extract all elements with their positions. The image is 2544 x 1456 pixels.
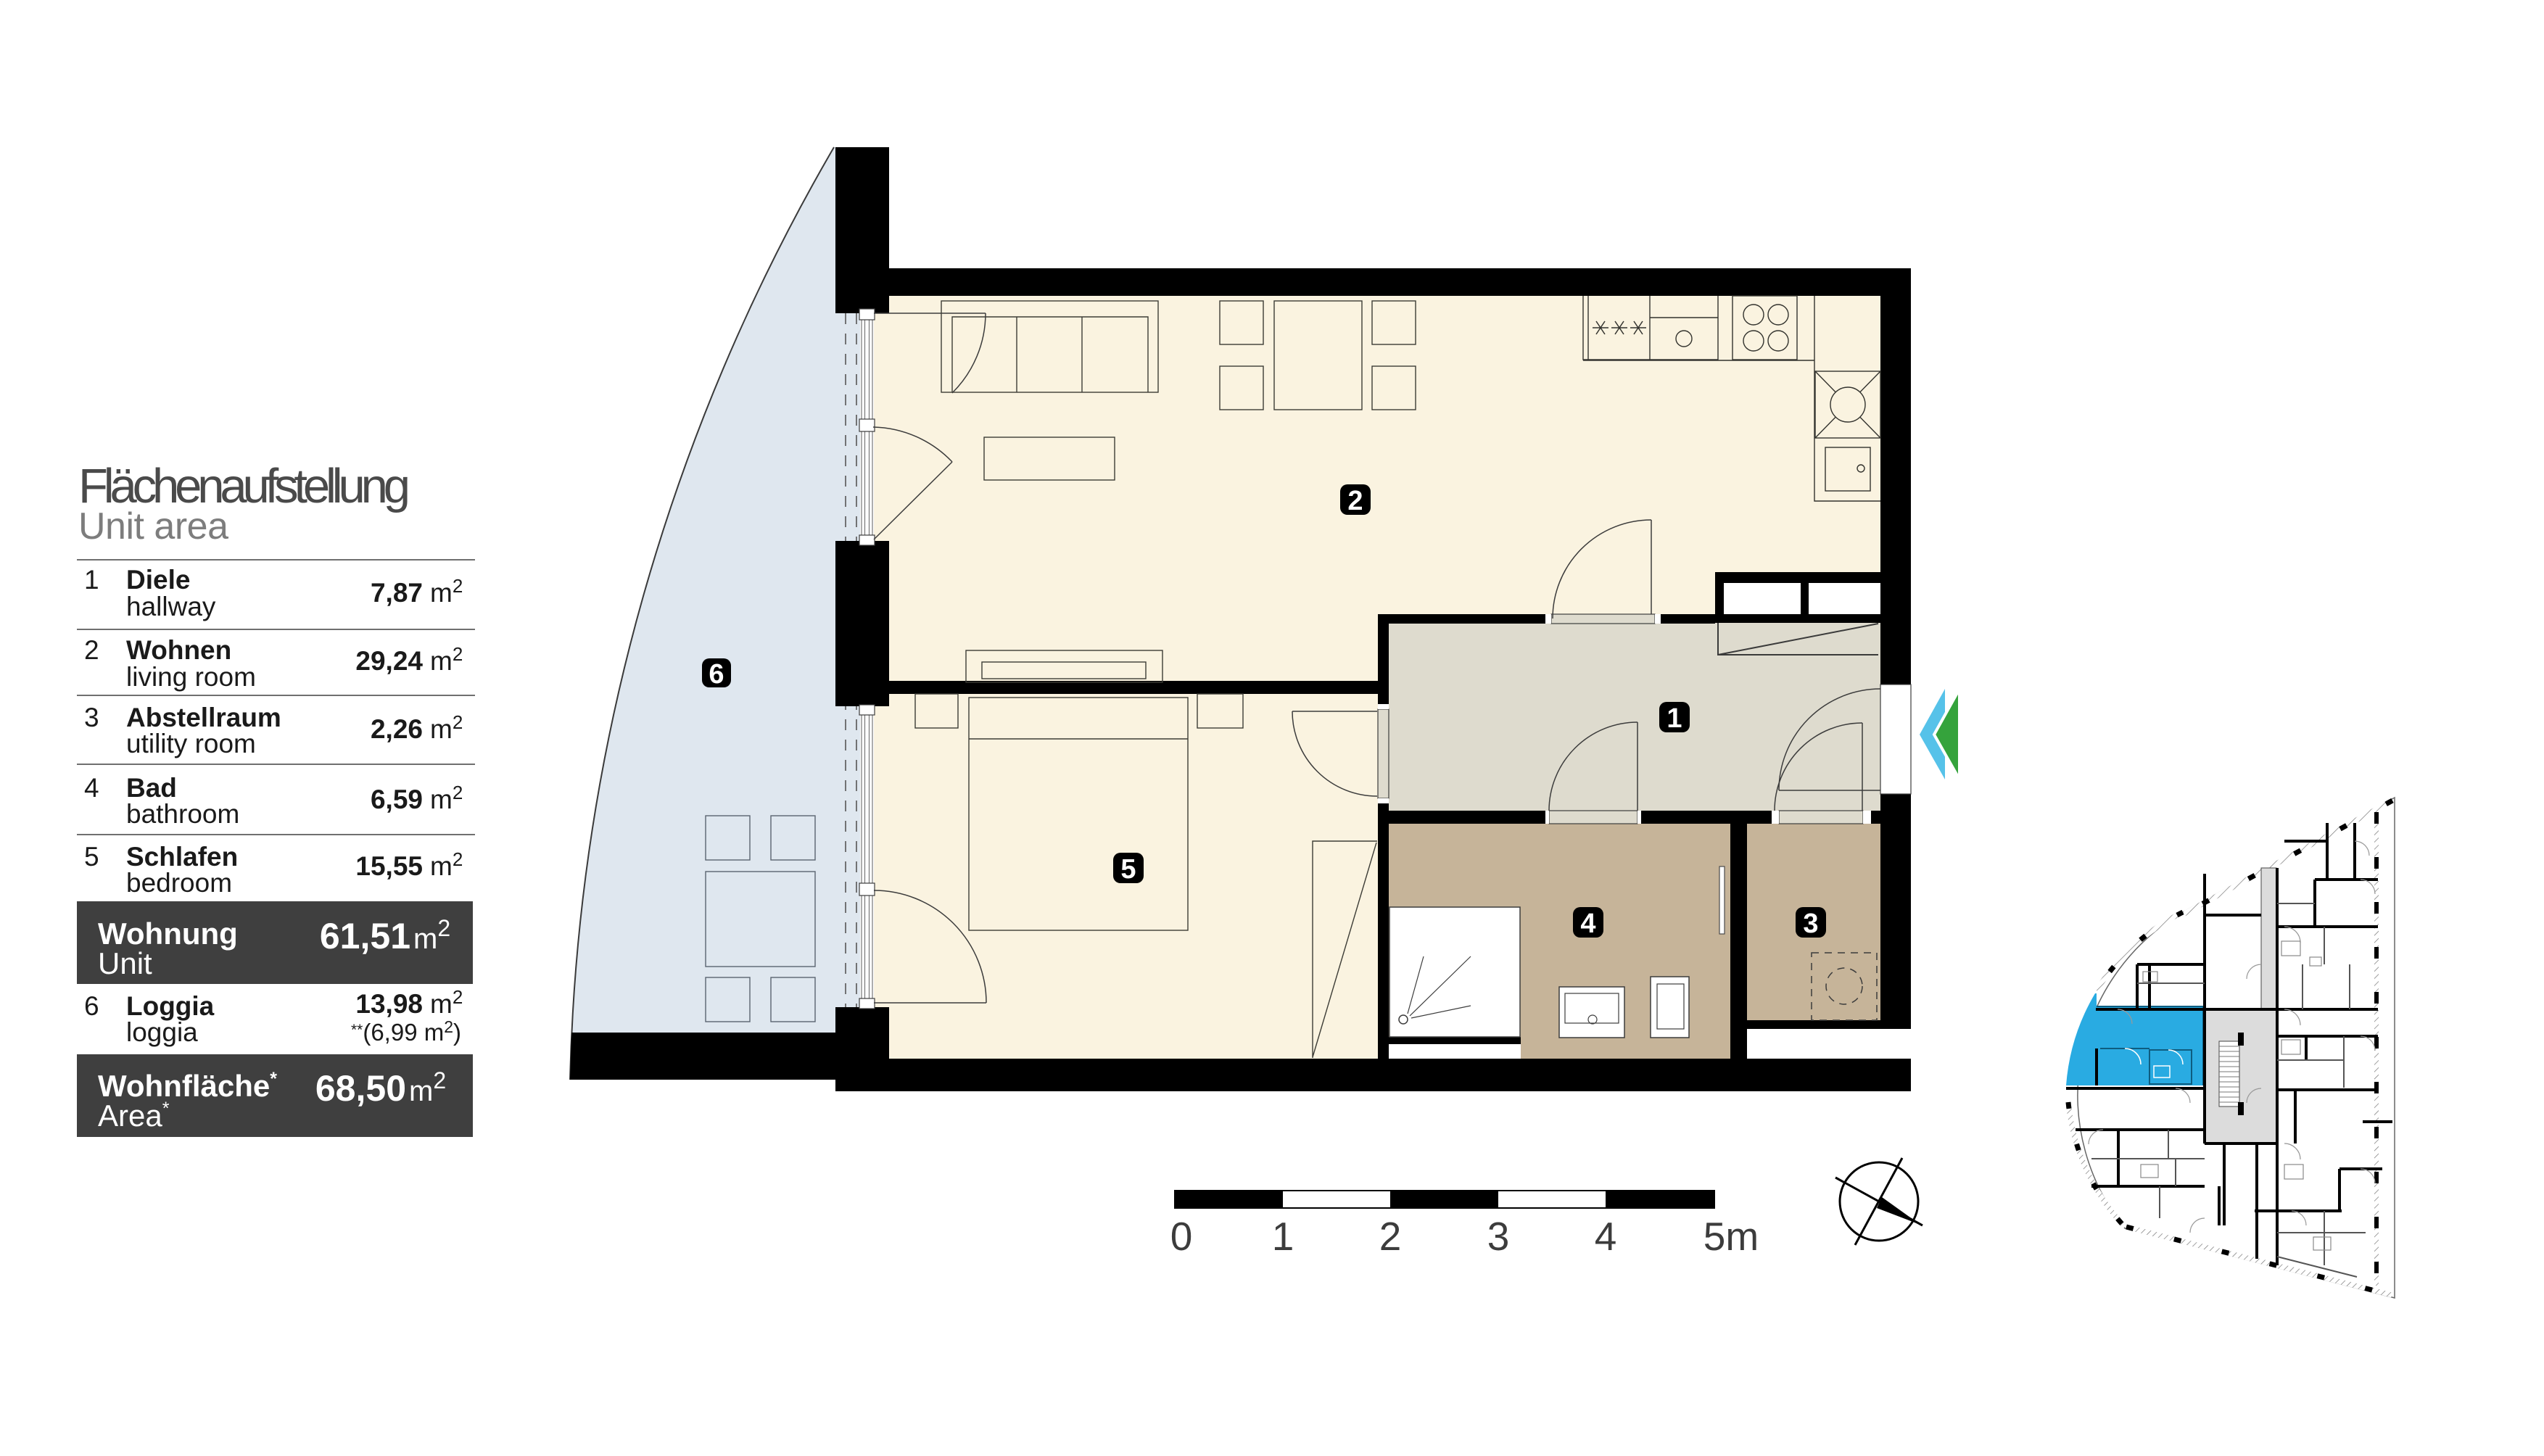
svg-text:2: 2 <box>84 635 99 665</box>
svg-text:Unit area: Unit area <box>78 505 228 547</box>
svg-text:6: 6 <box>709 659 724 690</box>
svg-text:Wohnfläche*: Wohnfläche* <box>98 1069 277 1103</box>
svg-text:Unit: Unit <box>98 946 152 980</box>
svg-text:Area*: Area* <box>98 1099 170 1133</box>
svg-text:68,50: 68,50 <box>315 1068 406 1109</box>
svg-text:1: 1 <box>1667 703 1682 734</box>
svg-text:living room: living room <box>126 662 256 692</box>
svg-text:utility room: utility room <box>126 729 256 758</box>
svg-text:3: 3 <box>84 703 99 732</box>
svg-text:6,59: 6,59 <box>371 785 423 814</box>
svg-text:5: 5 <box>1120 854 1136 885</box>
svg-text:1: 1 <box>1272 1214 1294 1259</box>
svg-text:Wohnen: Wohnen <box>126 635 231 665</box>
svg-text:0: 0 <box>1170 1214 1193 1259</box>
svg-text:15,55: 15,55 <box>355 851 423 881</box>
svg-text:bathroom: bathroom <box>126 799 239 829</box>
svg-text:13,98: 13,98 <box>355 989 423 1019</box>
svg-text:4: 4 <box>1580 909 1595 939</box>
svg-text:61,51: 61,51 <box>320 916 410 956</box>
svg-text:Abstellraum: Abstellraum <box>126 703 281 732</box>
svg-text:loggia: loggia <box>126 1017 198 1047</box>
svg-text:2: 2 <box>1347 486 1363 516</box>
svg-text:1: 1 <box>84 565 99 595</box>
svg-text:hallway: hallway <box>126 592 216 621</box>
svg-text:29,24: 29,24 <box>355 646 423 676</box>
svg-text:Loggia: Loggia <box>126 991 215 1021</box>
svg-text:2,26: 2,26 <box>371 714 423 744</box>
svg-text:Bad: Bad <box>126 773 177 803</box>
svg-text:Schlafen: Schlafen <box>126 842 238 872</box>
svg-text:5: 5 <box>84 842 99 872</box>
svg-text:5m: 5m <box>1703 1214 1759 1259</box>
svg-text:2: 2 <box>1379 1214 1402 1259</box>
svg-text:3: 3 <box>1487 1214 1510 1259</box>
svg-text:4: 4 <box>84 773 99 803</box>
svg-text:6: 6 <box>84 991 99 1021</box>
svg-text:Wohnung: Wohnung <box>98 917 238 951</box>
svg-text:4: 4 <box>1595 1214 1617 1259</box>
svg-text:Diele: Diele <box>126 565 190 595</box>
svg-text:bedroom: bedroom <box>126 868 232 898</box>
svg-text:7,87: 7,87 <box>371 578 423 608</box>
svg-text:3: 3 <box>1803 909 1818 939</box>
